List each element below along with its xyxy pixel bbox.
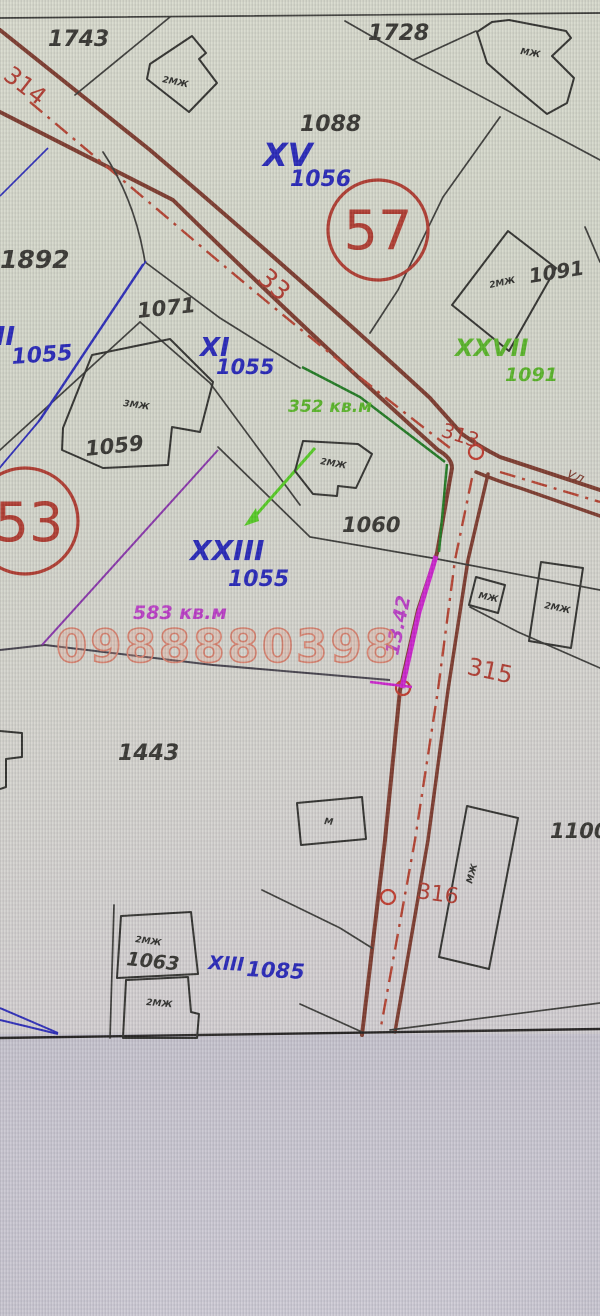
parcel-number: 1728 [368, 21, 429, 46]
district-number: 57 [344, 199, 413, 262]
lot-number: 1056 [290, 167, 351, 192]
building-type-label: МЖ [465, 862, 480, 885]
boundary-line [0, 13, 600, 18]
bottom-blank-band [0, 1034, 600, 1316]
boundary-line [262, 890, 372, 948]
building-type-label: 2МЖ [543, 601, 572, 616]
green-arrowhead [244, 508, 259, 526]
survey-point-number: 316 [415, 879, 460, 910]
building-outline [147, 36, 217, 112]
road-centerline [30, 102, 450, 448]
cadastral-map-photo: 2МЖ МЖ 2МЖ 3МЖ 2МЖ МЖ 2МЖ М МЖ 2МЖ 2МЖ 5… [0, 0, 600, 1316]
lot-number: 1055 [216, 355, 274, 379]
lot-roman-green: XXVII [453, 334, 529, 362]
building-type-label: МЖ [477, 591, 500, 605]
parcel-number: 1443 [118, 741, 179, 766]
survey-point-number: 315 [465, 652, 516, 689]
lot-number-green: 1091 [505, 364, 558, 386]
road-edge [0, 30, 600, 490]
district-number: 53 [0, 491, 63, 554]
lot-number: 1055 [11, 341, 74, 370]
survey-point-number: 313 [438, 418, 482, 453]
building-type-label: МЖ [519, 47, 541, 60]
boundary-line [110, 905, 114, 1038]
parcel-number: 1063 [125, 948, 180, 975]
building-type-label: 2МЖ [146, 998, 174, 1010]
building-outline [452, 231, 556, 351]
boundary-blue [0, 148, 48, 196]
lot-number: 1085 [246, 957, 306, 984]
area-green: 352 кв.м [288, 397, 372, 417]
survey-point-number: 314 [0, 61, 52, 111]
building-outline-partial [0, 731, 22, 789]
building-type-label: 2МЖ [489, 275, 518, 290]
boundary-blue [0, 1020, 58, 1034]
boundary-line [300, 1004, 362, 1032]
parcel-number: 1059 [84, 431, 145, 461]
building-type-label: М [324, 817, 334, 828]
cadastral-map: 2МЖ МЖ 2МЖ 3МЖ 2МЖ МЖ 2МЖ М МЖ 2МЖ 2МЖ 5… [0, 0, 600, 1316]
boundary-line [585, 227, 600, 262]
parcel-number: 1088 [300, 112, 361, 137]
building-type-label: 3МЖ [123, 399, 151, 413]
parcel-number: 1743 [48, 27, 109, 52]
parcel-number: 1100 [550, 819, 600, 843]
lot-roman: XIII [207, 952, 245, 976]
parcel-number: 1060 [342, 513, 400, 537]
parcel-number: 1892 [0, 245, 70, 274]
boundary-line [390, 1003, 600, 1030]
parcel-number: 1071 [136, 293, 197, 323]
lot-number: 1055 [228, 567, 289, 592]
building-outline [477, 20, 574, 114]
boundary-blue [0, 1008, 58, 1033]
building-type-label: 2МЖ [135, 935, 163, 949]
survey-marker-316 [381, 890, 395, 904]
lot-roman: XXIII [188, 534, 264, 567]
building-type-label: 2МЖ [319, 457, 348, 472]
phone-watermark: 0988880398 [56, 620, 399, 673]
building-type-label: 2МЖ [161, 75, 190, 90]
parcel-number: 1091 [527, 256, 586, 288]
